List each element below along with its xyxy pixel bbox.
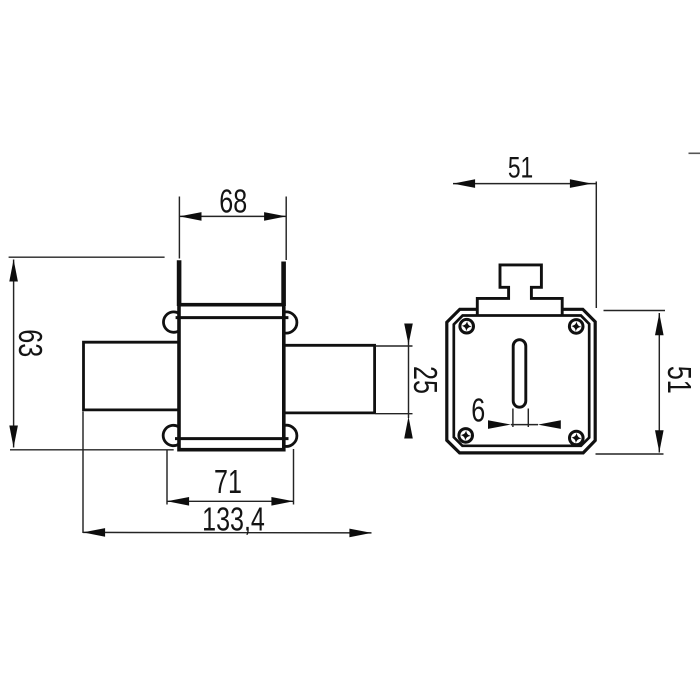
svg-text:51: 51: [508, 150, 533, 184]
svg-text:6: 6: [471, 392, 485, 429]
svg-text:71: 71: [214, 464, 242, 501]
svg-text:25: 25: [406, 366, 443, 394]
svg-text:133,4: 133,4: [202, 501, 265, 538]
svg-text:68: 68: [219, 183, 247, 220]
svg-text:63: 63: [11, 329, 48, 357]
svg-text:51: 51: [660, 366, 697, 394]
